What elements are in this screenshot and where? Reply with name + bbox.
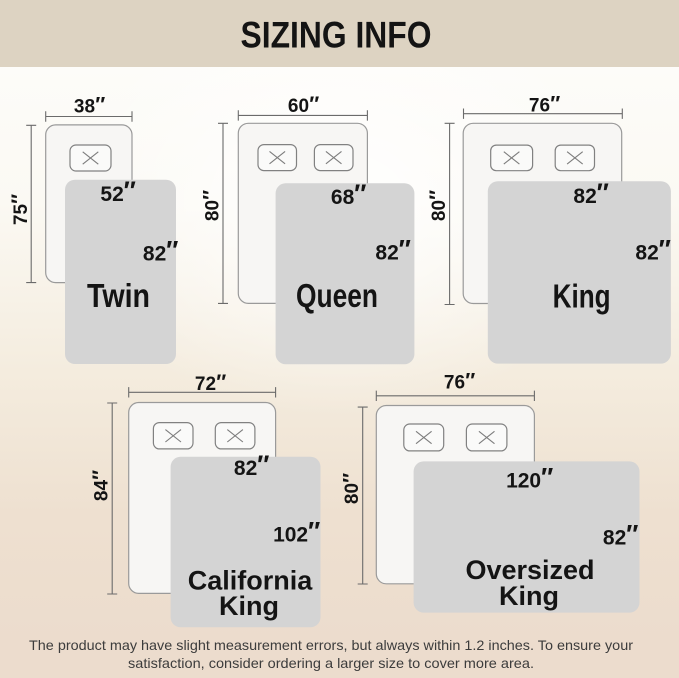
svg-text:The product may have slight me: The product may have slight measurement …	[29, 637, 633, 653]
svg-text:SIZING INFO: SIZING INFO	[241, 15, 432, 56]
svg-text:80″: 80″	[339, 473, 363, 504]
svg-text:Twin: Twin	[87, 277, 150, 314]
svg-text:Queen: Queen	[296, 277, 378, 314]
svg-text:60″: 60″	[288, 93, 319, 117]
svg-text:King: King	[219, 591, 279, 621]
svg-text:80″: 80″	[426, 190, 450, 221]
svg-text:75″: 75″	[8, 194, 32, 225]
svg-text:satisfaction, consider orderin: satisfaction, consider ordering a larger…	[128, 655, 534, 671]
svg-text:King: King	[553, 278, 611, 315]
svg-text:King: King	[499, 581, 559, 611]
svg-text:76″: 76″	[529, 93, 560, 117]
svg-text:84″: 84″	[89, 470, 113, 501]
svg-text:80″: 80″	[200, 190, 224, 221]
svg-text:76″: 76″	[444, 370, 475, 394]
svg-text:38″: 38″	[74, 94, 105, 118]
svg-text:72″: 72″	[195, 371, 226, 395]
